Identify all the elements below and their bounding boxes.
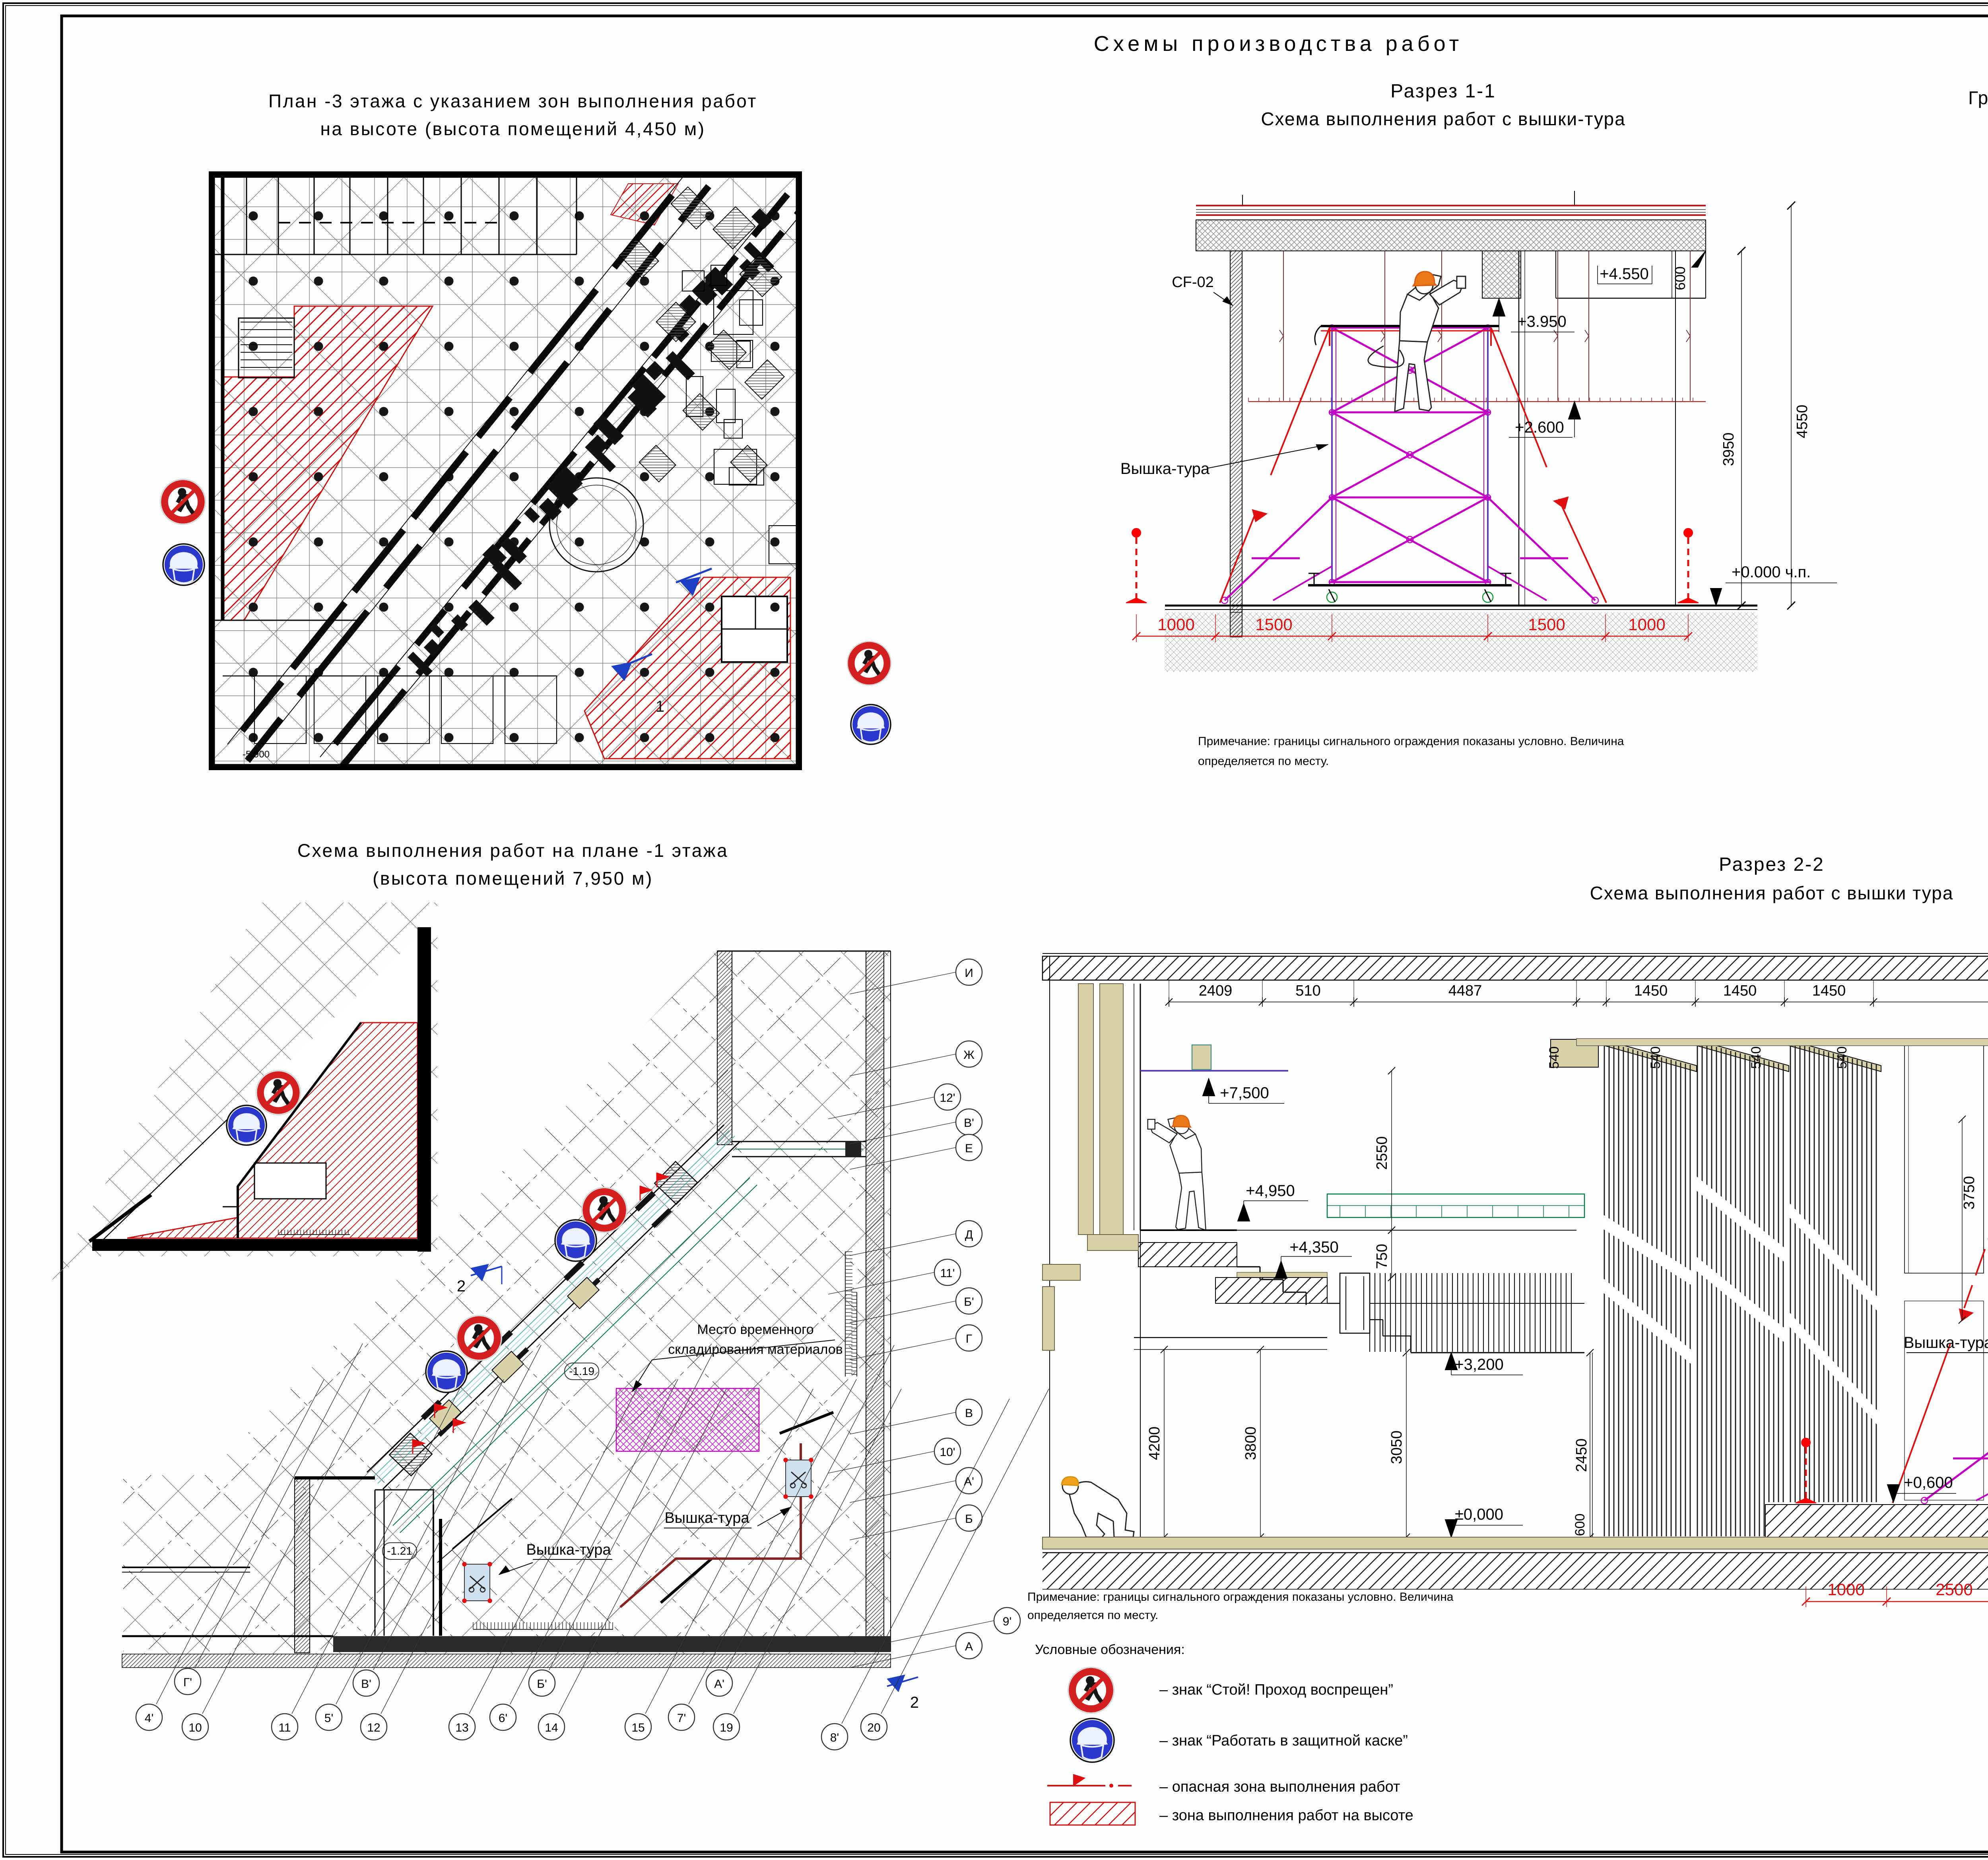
svg-text:Б': Б' bbox=[537, 1677, 547, 1691]
svg-text:4487: 4487 bbox=[1448, 982, 1482, 999]
svg-text:+3,200: +3,200 bbox=[1454, 1356, 1503, 1373]
svg-text:– опасная зона выполнения рабо: – опасная зона выполнения работ bbox=[1159, 1778, 1400, 1795]
svg-text:9': 9' bbox=[1003, 1615, 1011, 1628]
svg-text:-5.900: -5.900 bbox=[243, 749, 270, 760]
svg-text:Схема выполнения работ на план: Схема выполнения работ на плане -1 этажа bbox=[297, 840, 728, 861]
svg-text:В': В' bbox=[361, 1677, 371, 1691]
svg-text:И: И bbox=[965, 967, 973, 980]
svg-text:600: 600 bbox=[1672, 266, 1688, 290]
svg-text:4550: 4550 bbox=[1794, 405, 1811, 439]
svg-text:+0.000 ч.п.: +0.000 ч.п. bbox=[1732, 563, 1811, 581]
svg-text:14: 14 bbox=[545, 1721, 558, 1734]
svg-text:Вышка-тура: Вышка-тура bbox=[1904, 1334, 1988, 1351]
svg-text:6': 6' bbox=[499, 1712, 507, 1725]
svg-text:15: 15 bbox=[631, 1721, 645, 1734]
svg-text:2450: 2450 bbox=[1573, 1439, 1590, 1472]
svg-text:Примечание: границы сигнальног: Примечание: границы сигнального огражден… bbox=[1198, 735, 1624, 748]
svg-text:Б': Б' bbox=[964, 1295, 974, 1309]
svg-text:7': 7' bbox=[677, 1712, 686, 1725]
svg-text:10': 10' bbox=[940, 1446, 955, 1459]
svg-text:2500: 2500 bbox=[1936, 1580, 1972, 1599]
svg-text:+4,950: +4,950 bbox=[1246, 1182, 1295, 1200]
svg-text:3950: 3950 bbox=[1720, 433, 1737, 466]
svg-text:1450: 1450 bbox=[1812, 982, 1846, 999]
svg-text:Ж: Ж bbox=[963, 1048, 975, 1062]
svg-text:2: 2 bbox=[457, 1278, 466, 1295]
svg-text:Г: Г bbox=[966, 1332, 972, 1345]
svg-text:8': 8' bbox=[830, 1731, 839, 1744]
svg-text:+0,600: +0,600 bbox=[1904, 1474, 1953, 1491]
svg-text:540: 540 bbox=[1547, 1046, 1562, 1069]
svg-text:12: 12 bbox=[367, 1721, 380, 1734]
svg-text:+4,350: +4,350 bbox=[1289, 1239, 1338, 1256]
svg-text:Разрез 1-1: Разрез 1-1 bbox=[1390, 81, 1496, 102]
svg-text:Примечание: границы сигнальног: Примечание: границы сигнального огражден… bbox=[1027, 1590, 1454, 1604]
svg-text:3050: 3050 bbox=[1388, 1431, 1405, 1464]
svg-text:План -3 этажа с указанием зон: План -3 этажа с указанием зон выполнения… bbox=[268, 91, 757, 111]
svg-text:510: 510 bbox=[1295, 982, 1320, 999]
svg-text:1000: 1000 bbox=[1628, 615, 1665, 634]
svg-text:2: 2 bbox=[910, 1694, 919, 1711]
svg-text:3800: 3800 bbox=[1242, 1427, 1259, 1460]
svg-text:Схема выполнения работ с вышки: Схема выполнения работ с вышки-тура bbox=[1261, 109, 1625, 129]
svg-text:1450: 1450 bbox=[1723, 982, 1757, 999]
svg-text:Высота возможного падения груз: Высота возможного падения грузов, предме… bbox=[1985, 232, 1988, 695]
svg-text:Условные обозначения:: Условные обозначения: bbox=[1035, 1642, 1185, 1657]
svg-text:600: 600 bbox=[1573, 1514, 1588, 1536]
svg-text:Вышка-тура: Вышка-тура bbox=[664, 1510, 749, 1526]
svg-text:1500: 1500 bbox=[1255, 615, 1292, 634]
svg-text:Разрез 2-2: Разрез 2-2 bbox=[1719, 854, 1825, 875]
svg-text:20: 20 bbox=[867, 1721, 880, 1734]
svg-text:определяется по месту.: определяется по месту. bbox=[1198, 755, 1329, 768]
svg-text:13: 13 bbox=[455, 1721, 468, 1734]
svg-text:CF-02: CF-02 bbox=[1172, 274, 1214, 291]
svg-text:+7,500: +7,500 bbox=[1220, 1084, 1269, 1102]
svg-text:1: 1 bbox=[656, 698, 664, 715]
svg-text:-1.19: -1.19 bbox=[569, 1365, 594, 1377]
svg-text:1000: 1000 bbox=[1827, 1580, 1864, 1599]
svg-text:– знак “Работать в защитной ка: – знак “Работать в защитной каске” bbox=[1159, 1732, 1408, 1749]
svg-text:Схема выполнения работ с вышки: Схема выполнения работ с вышки тура bbox=[1590, 883, 1954, 903]
svg-text:складирования материалов: складирования материалов bbox=[668, 1342, 843, 1357]
svg-text:Вышка-тура: Вышка-тура bbox=[526, 1542, 611, 1558]
svg-text:Г': Г' bbox=[183, 1676, 192, 1689]
svg-text:(высота помещений 7,950 м): (высота помещений 7,950 м) bbox=[373, 868, 653, 889]
svg-text:В': В' bbox=[964, 1116, 974, 1130]
svg-text:Д: Д bbox=[965, 1228, 973, 1241]
svg-text:– знак “Стой! Проход воспрещен: – знак “Стой! Проход воспрещен” bbox=[1159, 1681, 1393, 1698]
svg-text:±0,000: ±0,000 bbox=[1455, 1506, 1503, 1523]
svg-text:540: 540 bbox=[1648, 1046, 1663, 1069]
svg-text:4200: 4200 bbox=[1146, 1427, 1163, 1460]
svg-text:2409: 2409 bbox=[1199, 982, 1233, 999]
svg-text:10: 10 bbox=[188, 1721, 202, 1734]
svg-text:Схемы производства работ: Схемы производства работ bbox=[1094, 32, 1463, 56]
svg-text:12': 12' bbox=[940, 1091, 955, 1105]
svg-text:1450: 1450 bbox=[1634, 982, 1668, 999]
svg-text:11': 11' bbox=[940, 1267, 955, 1280]
svg-text:+3.950: +3.950 bbox=[1517, 313, 1566, 330]
svg-text:Вышка-тура: Вышка-тура bbox=[1120, 460, 1210, 478]
svg-text:В: В bbox=[965, 1407, 973, 1420]
svg-text:1500: 1500 bbox=[1528, 615, 1565, 634]
svg-text:Б: Б bbox=[965, 1512, 973, 1526]
svg-text:Место временного: Место временного bbox=[697, 1322, 813, 1337]
svg-text:3750: 3750 bbox=[1961, 1176, 1978, 1210]
svg-text:+4.550: +4.550 bbox=[1600, 265, 1648, 283]
svg-text:– зона выполнения работ на выс: – зона выполнения работ на высоте bbox=[1159, 1807, 1413, 1824]
svg-text:График минимального расстояния: График минимального расстояния отлета гр… bbox=[1968, 87, 1988, 108]
svg-text:на высоте (высота помещений 4,: на высоте (высота помещений 4,450 м) bbox=[320, 118, 705, 139]
svg-text:-1.21: -1.21 bbox=[387, 1545, 412, 1557]
svg-text:2550: 2550 bbox=[1374, 1136, 1390, 1170]
svg-text:А: А bbox=[965, 1640, 973, 1653]
svg-text:750: 750 bbox=[1374, 1244, 1390, 1269]
svg-text:Е: Е bbox=[965, 1142, 973, 1155]
svg-text:11: 11 bbox=[278, 1721, 291, 1734]
svg-text:А': А' bbox=[714, 1677, 724, 1691]
svg-text:+2.600: +2.600 bbox=[1515, 419, 1564, 436]
svg-text:4': 4' bbox=[145, 1712, 153, 1725]
svg-text:540: 540 bbox=[1749, 1046, 1764, 1069]
svg-text:19: 19 bbox=[720, 1721, 733, 1734]
svg-text:определяется по месту.: определяется по месту. bbox=[1027, 1609, 1158, 1622]
svg-text:1000: 1000 bbox=[1157, 615, 1194, 634]
svg-text:5': 5' bbox=[324, 1712, 333, 1725]
